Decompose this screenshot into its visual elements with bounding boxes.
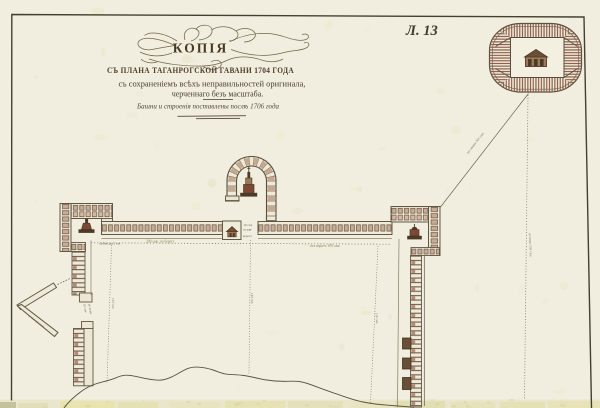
svg-text:140 саж: 140 саж (250, 293, 254, 305)
svg-text:Л. 13: Л. 13 (405, 23, 438, 39)
svg-text:130 саж: 130 саж (375, 313, 380, 325)
svg-text:150 саж: 150 саж (111, 298, 115, 310)
svg-text:во рву: во рву (244, 228, 253, 232)
svg-text:СЪ ПЛАНА ТАГАНРОГСКОЙ ГАВАНИ 1: СЪ ПЛАНА ТАГАНРОГСКОЙ ГАВАНИ 1704 ГОДА (107, 65, 294, 75)
svg-text:200 саж. по берегу: 200 саж. по берегу (146, 239, 175, 243)
svg-text:черченнаго безъ масштаба.: черченнаго безъ масштаба. (172, 89, 264, 99)
svg-text:глубина рва 2 саж: глубина рва 2 саж (99, 243, 120, 246)
svg-text:Башни и строенія поставлены по: Башни и строенія поставлены послѣ 1706 г… (136, 102, 279, 111)
svg-text:КОПІЯ: КОПІЯ (173, 41, 228, 56)
svg-text:10 саж: 10 саж (244, 223, 254, 227)
svg-text:съ сохраненіемъ всѣхъ неправил: съ сохраненіемъ всѣхъ неправильностей ор… (119, 79, 306, 89)
svg-text:отъ воротъ 100 саж.: отъ воротъ 100 саж. (310, 244, 340, 248)
svg-text:ворота: ворота (243, 234, 252, 238)
